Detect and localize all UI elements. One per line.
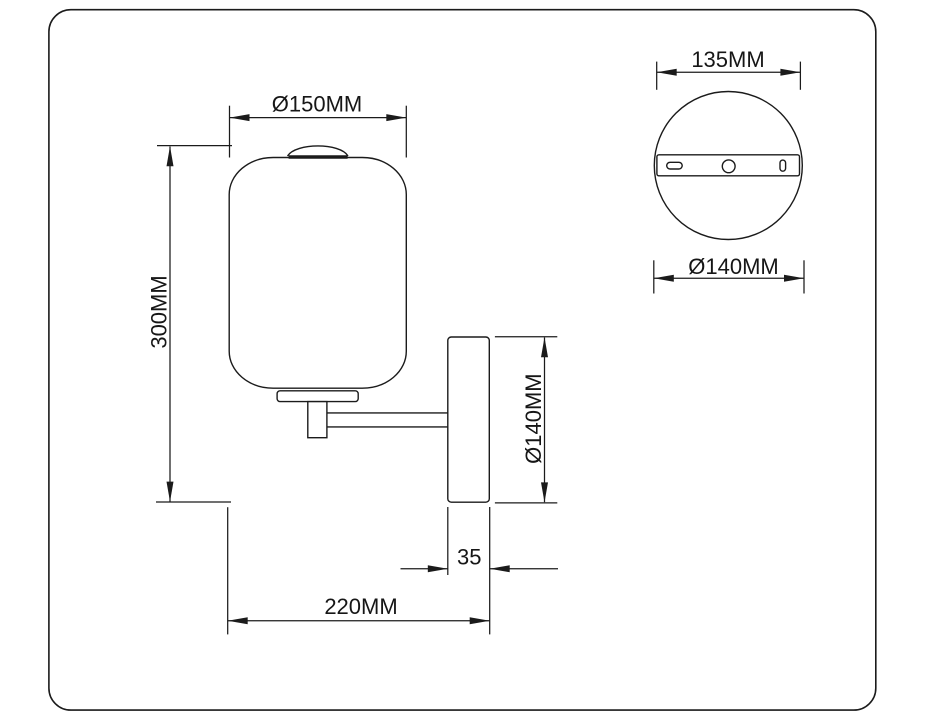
svg-text:Ø140MM: Ø140MM xyxy=(521,373,546,463)
svg-text:135MM: 135MM xyxy=(691,47,764,72)
svg-text:Ø140MM: Ø140MM xyxy=(688,254,778,279)
svg-text:220MM: 220MM xyxy=(324,594,397,619)
svg-text:300MM: 300MM xyxy=(147,275,172,348)
svg-text:Ø150MM: Ø150MM xyxy=(272,92,362,117)
svg-text:35: 35 xyxy=(457,545,481,570)
